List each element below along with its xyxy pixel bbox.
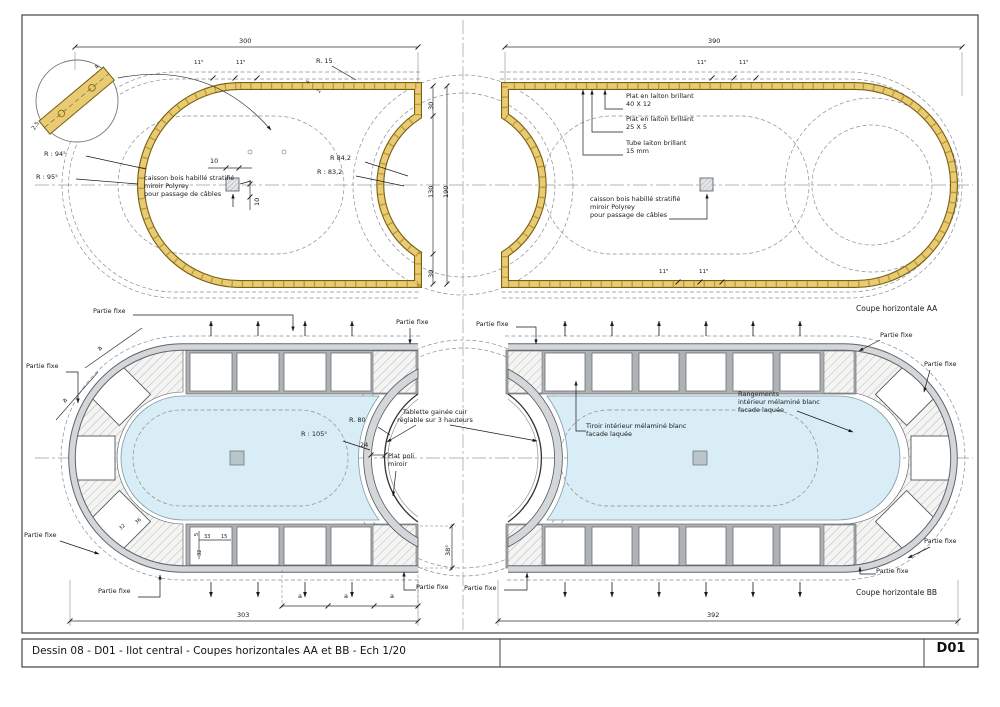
dim-24: 24 — [360, 442, 368, 450]
cable-box — [693, 451, 707, 465]
radius-95: R : 95⁵ — [36, 174, 58, 182]
note-plat-40x12: Plat en laiton brillant 40 X 12 — [626, 93, 694, 109]
dim-130: 130 — [428, 186, 436, 198]
label-partie-fixe: Partie fixe — [416, 584, 448, 592]
dim-30-bottom: 30 — [428, 270, 436, 278]
dim-300: 300 — [239, 38, 251, 46]
note-tiroir: Tiroir intérieur mélaminé blanc facade l… — [586, 423, 687, 439]
label-partie-fixe: Partie fixe — [880, 332, 912, 340]
label-partie-fixe: Partie fixe — [396, 319, 428, 327]
dim-a: a — [298, 593, 302, 601]
label-partie-fixe: Partie fixe — [26, 363, 58, 371]
label-partie-fixe: Partie fixe — [876, 568, 908, 576]
radius-94: R : 94⁵ — [44, 151, 66, 159]
dim-303: 303 — [237, 612, 249, 620]
drawing-canvas — [0, 0, 1000, 707]
radius-83-2: R : 83,2 — [317, 169, 342, 177]
note-caisson-right: caisson bois habillé stratifié miroir Po… — [590, 196, 680, 220]
label-partie-fixe: Partie fixe — [476, 321, 508, 329]
label-partie-fixe: Partie fixe — [24, 532, 56, 540]
panel-bb-right — [505, 336, 965, 580]
note-tube-laiton: Tube laiton brillant 15 mm — [626, 140, 686, 156]
note-rangements: Rangements intérieur mélaminé blanc faca… — [738, 391, 820, 415]
angle-11: 11⁵ — [699, 269, 708, 276]
note-plat-poli: Plat poli miroir — [388, 453, 414, 469]
radius-105: R : 105⁵ — [301, 431, 327, 439]
angle-11: 11⁵ — [697, 60, 706, 67]
caption-coupe-bb: Coupe horizontale BB — [856, 588, 937, 597]
dim-a: a — [390, 593, 394, 601]
dim-tiny-32: 32 — [197, 550, 203, 556]
dim-30-top: 30 — [428, 102, 436, 110]
radius-80: R. 80 — [349, 417, 366, 425]
label-partie-fixe: Partie fixe — [98, 588, 130, 596]
angle-11: 11⁵ — [236, 60, 245, 67]
dim-tiny-33: 33 — [204, 534, 210, 540]
angle-11: 11⁵ — [659, 269, 668, 276]
title-block-title: Dessin 08 - D01 - Ilot central - Coupes … — [32, 645, 406, 657]
dim-390: 390 — [708, 38, 720, 46]
dim-10-v: 10 — [254, 198, 262, 206]
panel-bb-left — [61, 336, 420, 580]
dim-tiny-15: 15 — [221, 534, 227, 540]
label-partie-fixe: Partie fixe — [924, 538, 956, 546]
label-partie-fixe: Partie fixe — [924, 361, 956, 369]
caption-coupe-aa: Coupe horizontale AA — [856, 304, 937, 313]
note-tablette: Tablette gainée cuir réglable sur 3 haut… — [393, 409, 477, 425]
label-partie-fixe: Partie fixe — [464, 585, 496, 593]
dim-38: 38⁵ — [445, 545, 453, 556]
drawing-sheet: 300 390 11⁵ 11⁵ 11⁵ 11⁵ 11⁵ 11⁵ R. 15 4 … — [0, 0, 1000, 707]
note-caisson-left: caisson bois habillé stratifié miroir Po… — [144, 175, 234, 199]
label-partie-fixe: Partie fixe — [93, 308, 125, 316]
title-block-code: D01 — [924, 641, 978, 656]
cable-box — [700, 178, 713, 191]
dim-392: 392 — [707, 612, 719, 620]
cable-box — [230, 451, 244, 465]
dim-190: 190 — [443, 186, 451, 198]
dim-10-h: 10 — [210, 158, 218, 166]
radius-15: R. 15 — [316, 58, 333, 66]
dim-tiny-5: 5 — [194, 533, 200, 536]
radius-84-2: R 84,2 — [330, 155, 351, 163]
angle-11: 11⁵ — [739, 60, 748, 67]
angle-11: 11⁵ — [194, 60, 203, 67]
interior-blue — [547, 396, 900, 520]
note-plat-25x5: Plat en laiton brillant 25 X 5 — [626, 116, 694, 132]
dim-a: a — [344, 593, 348, 601]
